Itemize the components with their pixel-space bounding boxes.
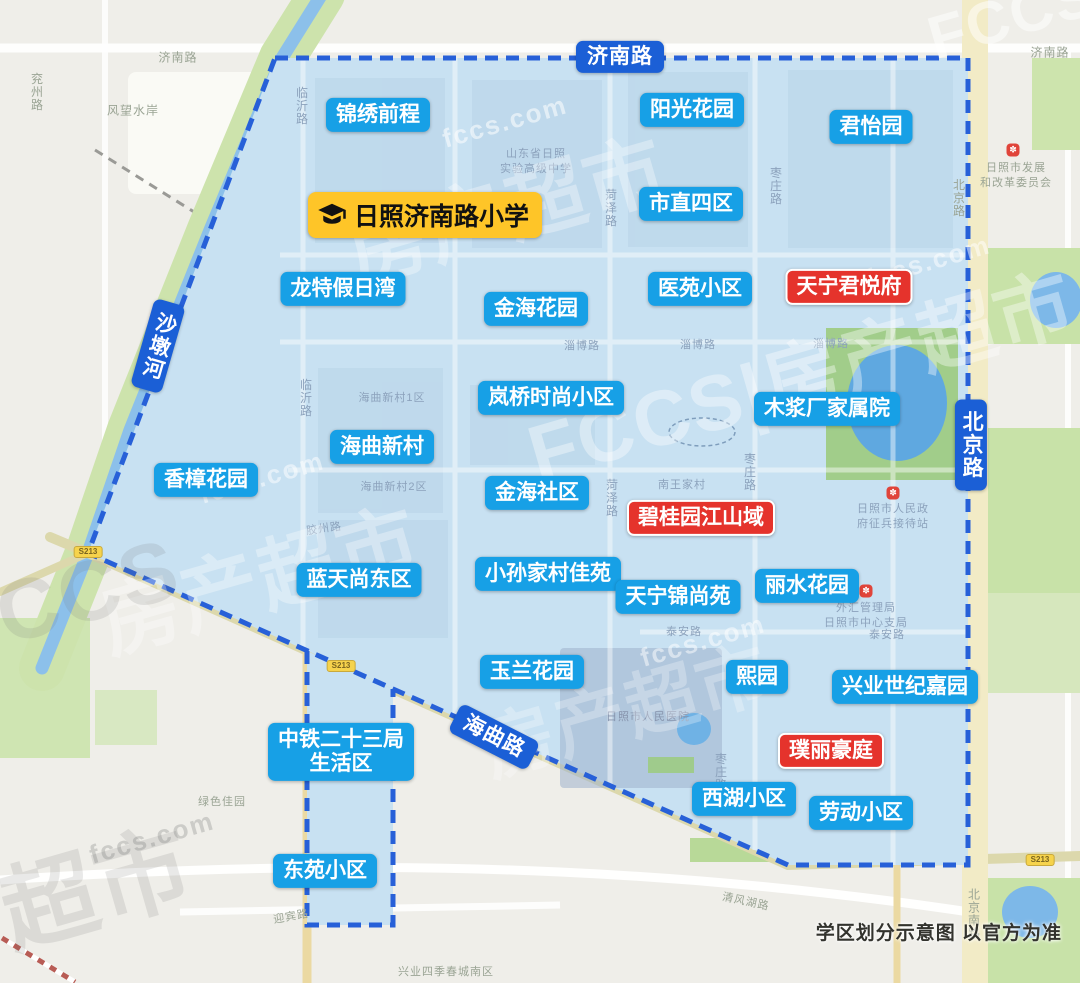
community-badge: 岚桥时尚小区 <box>478 381 624 415</box>
community-badge: 木浆厂家属院 <box>754 392 900 426</box>
community-badge: 西湖小区 <box>692 782 796 816</box>
community-badge: 阳光花园 <box>640 93 744 127</box>
community-badge: 东苑小区 <box>273 854 377 888</box>
community-badge: 医苑小区 <box>648 272 752 306</box>
community-badge-highlight: 碧桂园江山域 <box>627 500 775 536</box>
road-badge: 海曲路 <box>447 703 540 772</box>
road-badge: 北京路 <box>955 400 987 491</box>
community-badge: 小孙家村佳苑 <box>475 557 621 591</box>
community-badge: 金海社区 <box>485 476 589 510</box>
school-badge-label: 日照济南路小学 <box>354 197 529 233</box>
disclaimer-note: 学区划分示意图 以官方为准 <box>816 918 1062 945</box>
community-badge: 蓝天尚东区 <box>297 563 422 597</box>
school-district-map: 济南路济南路兖州路风望水岸临沂路临沂路菏泽路菏泽路枣庄路枣庄路枣庄路淄博路淄博路… <box>0 0 1080 983</box>
community-badge: 劳动小区 <box>809 796 913 830</box>
community-badge-highlight: 天宁君悦府 <box>786 269 913 305</box>
community-badge: 市直四区 <box>639 187 743 221</box>
graduation-cap-icon <box>317 200 347 230</box>
community-badge: 中铁二十三局 生活区 <box>268 723 414 781</box>
community-badge: 金海花园 <box>484 292 588 326</box>
community-badge: 丽水花园 <box>755 569 859 603</box>
community-badge: 天宁锦尚苑 <box>616 580 741 614</box>
community-badge: 兴业世纪嘉园 <box>832 670 978 704</box>
school-badge: 日照济南路小学 <box>308 192 542 238</box>
road-badge: 沙墩河 <box>130 298 186 394</box>
community-badge-highlight: 璞丽豪庭 <box>778 733 884 769</box>
community-badge: 香樟花园 <box>154 463 258 497</box>
road-badge: 济南路 <box>576 41 664 73</box>
community-badge: 君怡园 <box>830 110 913 144</box>
community-badge: 海曲新村 <box>330 430 434 464</box>
community-badge: 熙园 <box>726 660 788 694</box>
badge-layer: 日照济南路小学 济南路北京路海曲路沙墩河锦绣前程阳光花园君怡园市直四区龙特假日湾… <box>0 0 1080 983</box>
community-badge: 锦绣前程 <box>326 98 430 132</box>
community-badge: 龙特假日湾 <box>281 272 406 306</box>
community-badge: 玉兰花园 <box>480 655 584 689</box>
